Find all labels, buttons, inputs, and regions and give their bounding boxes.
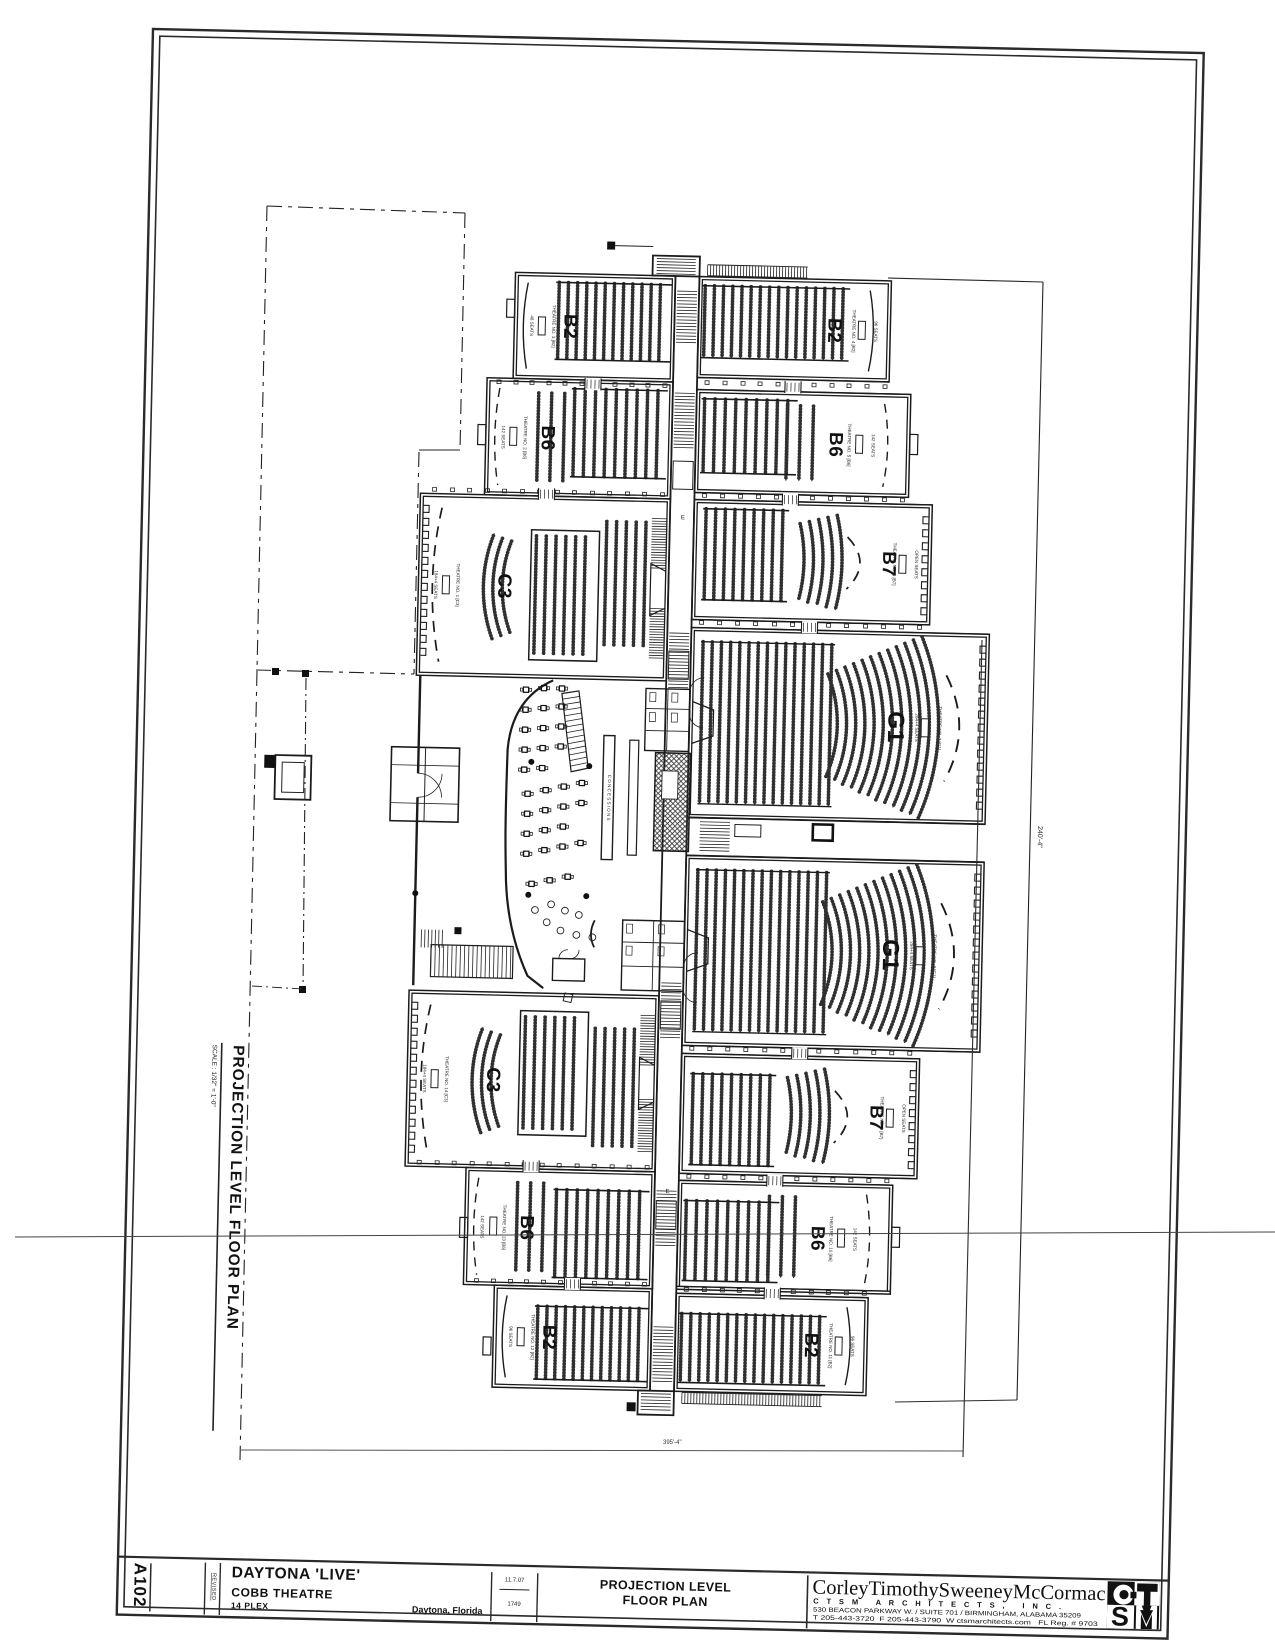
svg-text:184+4 SEATS: 184+4 SEATS	[433, 570, 439, 598]
svg-text:THEATRE NO. 4 [B2]: THEATRE NO. 4 [B2]	[851, 310, 857, 353]
svg-text:THEATRE NO. 12 [B2]: THEATRE NO. 12 [B2]	[530, 1314, 536, 1360]
svg-text:G1: G1	[883, 711, 910, 743]
svg-text:THEATRE NO. 13 [B6]: THEATRE NO. 13 [B6]	[501, 1205, 507, 1251]
svg-text:E: E	[681, 515, 685, 521]
svg-text:B6: B6	[806, 1226, 828, 1252]
svg-text:B2: B2	[823, 318, 845, 344]
svg-text:REVISED: REVISED	[210, 1573, 217, 1601]
svg-text:C3: C3	[482, 1067, 504, 1093]
svg-text:184+4 SEATS: 184+4 SEATS	[422, 1064, 428, 1092]
svg-text:THEATRE NO. 11 [B2]: THEATRE NO. 11 [B2]	[828, 1323, 834, 1368]
svg-text:THEATRE NO. 14 [C3]: THEATRE NO. 14 [C3]	[444, 1056, 450, 1102]
svg-text:THEATRE NO. 2 [B6]: THEATRE NO. 2 [B6]	[522, 416, 528, 459]
svg-text:THEATRE NO. 5 [B6]: THEATRE NO. 5 [B6]	[846, 424, 852, 467]
svg-text:1749: 1749	[507, 1602, 521, 1608]
svg-text:B6: B6	[824, 432, 846, 458]
svg-text:THEATRE NO. 9 [B7]: THEATRE NO. 9 [B7]	[879, 1096, 885, 1139]
svg-text:THEATRE NO. 1 [C3]: THEATRE NO. 1 [C3]	[455, 563, 461, 606]
svg-text:FLOOR PLAN: FLOOR PLAN	[622, 1593, 708, 1609]
svg-text:OPEN SEATS: OPEN SEATS	[914, 550, 920, 579]
svg-text:B6: B6	[536, 425, 558, 451]
svg-text:DAYTONA 'LIVE': DAYTONA 'LIVE'	[232, 1564, 361, 1584]
svg-text:E: E	[665, 1189, 669, 1195]
svg-text:395'-4": 395'-4"	[663, 1440, 682, 1446]
svg-text:G1: G1	[878, 939, 905, 971]
svg-text:96 SEATS: 96 SEATS	[873, 321, 878, 342]
svg-text:C O N C E S S I O N S: C O N C E S S I O N S	[606, 775, 612, 821]
svg-text:B6: B6	[515, 1215, 537, 1241]
svg-text:142 SEATS: 142 SEATS	[500, 425, 506, 448]
svg-text:C3: C3	[493, 573, 515, 599]
svg-text:96 SEATS: 96 SEATS	[850, 1336, 855, 1357]
svg-text:THEATRE NO. 6 [B7]: THEATRE NO. 6 [B7]	[891, 543, 897, 586]
svg-text:284+4 SEATS: 284+4 SEATS	[914, 713, 920, 741]
svg-text:S: S	[1111, 1601, 1130, 1631]
svg-text:142 SEATS: 142 SEATS	[870, 434, 876, 457]
svg-text:B2: B2	[800, 1332, 822, 1358]
svg-text:284+4 SEATS: 284+4 SEATS	[909, 941, 915, 969]
svg-text:142 SEATS: 142 SEATS	[852, 1228, 858, 1251]
svg-text:OPEN SEATS: OPEN SEATS	[901, 1104, 907, 1133]
svg-text:B2: B2	[538, 1325, 560, 1351]
svg-text:B2: B2	[559, 314, 581, 340]
svg-text:11.7.07: 11.7.07	[505, 1577, 525, 1583]
svg-text:THEATRE NO. 8 [G1]: THEATRE NO. 8 [G1]	[932, 934, 938, 978]
svg-text:48 SEATS: 48 SEATS	[529, 315, 534, 336]
svg-text:96 SEATS: 96 SEATS	[508, 1326, 513, 1347]
svg-text:A102: A102	[130, 1563, 150, 1608]
svg-text:240'-4": 240'-4"	[1036, 826, 1043, 848]
svg-text:Daytona, Florida: Daytona, Florida	[412, 1604, 484, 1616]
svg-text:COBB THEATRE: COBB THEATRE	[231, 1585, 333, 1601]
svg-text:14 PLEX: 14 PLEX	[231, 1600, 269, 1611]
svg-text:SCALE : 1/32" = 1'-0": SCALE : 1/32" = 1'-0"	[209, 1045, 217, 1108]
svg-text:THEATRE NO. 7 [G1]: THEATRE NO. 7 [G1]	[937, 706, 943, 750]
svg-text:THEATRE NO. 3 [B2]: THEATRE NO. 3 [B2]	[551, 305, 557, 348]
svg-text:THEATRE NO. 10 [B6]: THEATRE NO. 10 [B6]	[828, 1216, 834, 1262]
